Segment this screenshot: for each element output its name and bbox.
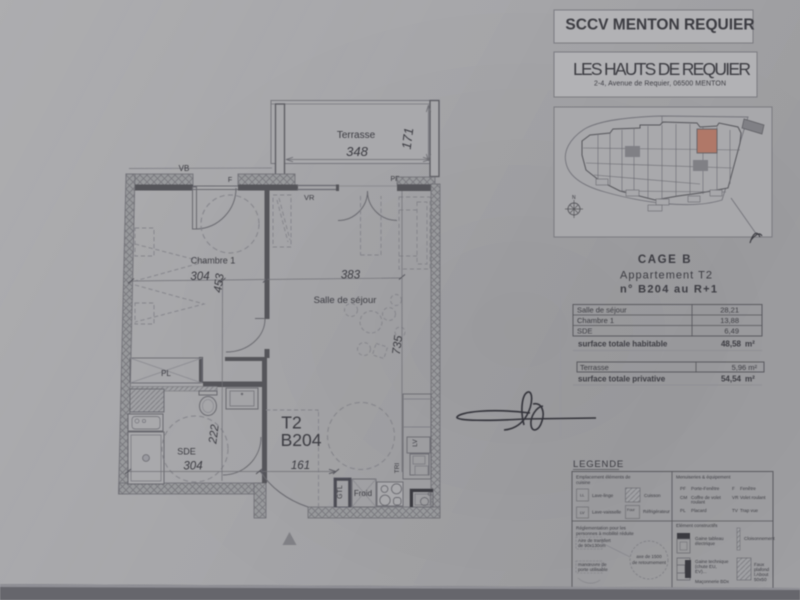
- svg-text:m²: m²: [745, 375, 755, 384]
- svg-text:personnes à mobilité réduite: personnes à mobilité réduite: [576, 531, 634, 536]
- svg-text:13,88: 13,88: [720, 316, 739, 325]
- svg-text:LV: LV: [580, 510, 585, 515]
- svg-text:Réfrigérateur: Réfrigérateur: [643, 509, 670, 514]
- svg-text:Maçonnerie BDx: Maçonnerie BDx: [695, 579, 730, 584]
- svg-text:surface totale habitable: surface totale habitable: [578, 340, 668, 349]
- svg-text:161: 161: [291, 460, 310, 472]
- svg-text:VR: VR: [304, 193, 315, 202]
- svg-text:Terrasse: Terrasse: [337, 130, 376, 141]
- svg-text:PL: PL: [680, 508, 686, 513]
- svg-text:Lave-linge: Lave-linge: [592, 493, 614, 498]
- svg-text:Fenêtre: Fenêtre: [740, 486, 756, 491]
- svg-text:SDE: SDE: [577, 327, 592, 336]
- svg-text:2-4, Avenue de Requier, 06500: 2-4, Avenue de Requier, 06500 MENTON: [594, 81, 726, 88]
- svg-text:Cuisson: Cuisson: [644, 493, 661, 498]
- svg-text:Trap vue: Trap vue: [740, 508, 758, 513]
- svg-text:SCCV MENTON REQUIER: SCCV MENTON REQUIER: [565, 17, 754, 34]
- svg-text:Menuiseries & équipement: Menuiseries & équipement: [676, 475, 731, 480]
- svg-text:735: 735: [391, 334, 405, 355]
- svg-text:Chambre 1: Chambre 1: [577, 316, 614, 325]
- svg-text:PL: PL: [161, 369, 171, 378]
- svg-text:5,96 m²: 5,96 m²: [732, 363, 758, 372]
- svg-text:383: 383: [341, 270, 361, 282]
- svg-text:roulant: roulant: [691, 500, 706, 505]
- svg-text:n° B204 au R+1: n° B204 au R+1: [620, 284, 717, 296]
- svg-text:CAGE B: CAGE B: [638, 254, 692, 266]
- svg-text:Emplacement éléments de: Emplacement éléments de: [576, 475, 631, 480]
- svg-text:50x50: 50x50: [754, 577, 767, 582]
- svg-text:VR: VR: [732, 495, 739, 500]
- svg-text:48,58: 48,58: [721, 340, 742, 349]
- svg-text:F: F: [228, 177, 232, 184]
- svg-text:6,49: 6,49: [724, 327, 739, 336]
- svg-text:électrique: électrique: [695, 541, 715, 546]
- svg-text:surface totale privative: surface totale privative: [578, 375, 666, 384]
- svg-text:Volet roulant: Volet roulant: [740, 495, 766, 500]
- svg-text:Chambre 1: Chambre 1: [191, 256, 236, 266]
- svg-text:Lave-vaisselle: Lave-vaisselle: [592, 510, 622, 515]
- svg-text:GTL: GTL: [337, 485, 344, 499]
- svg-text:LES HAUTS DE REQUIER: LES HAUTS DE REQUIER: [573, 59, 751, 79]
- svg-text:EV)...: EV)...: [695, 569, 707, 574]
- svg-text:VB: VB: [179, 164, 190, 173]
- svg-text:CM: CM: [680, 495, 687, 500]
- svg-text:Four: Four: [627, 508, 636, 512]
- svg-text:SDE: SDE: [177, 447, 196, 457]
- svg-text:axe de 1500: axe de 1500: [636, 554, 662, 559]
- svg-text:28,21: 28,21: [720, 306, 739, 315]
- svg-text:Salle de séjour: Salle de séjour: [577, 306, 627, 315]
- svg-text:m²: m²: [745, 340, 755, 349]
- svg-text:222: 222: [207, 423, 221, 445]
- svg-text:304: 304: [183, 461, 202, 473]
- svg-text:N: N: [572, 195, 576, 201]
- svg-text:F: F: [732, 486, 735, 491]
- svg-text:348: 348: [346, 144, 368, 159]
- svg-text:LEGENDE: LEGENDE: [573, 459, 624, 470]
- svg-text:B204: B204: [281, 430, 322, 450]
- svg-text:porte utilisable: porte utilisable: [578, 567, 608, 572]
- svg-text:PF: PF: [680, 486, 686, 491]
- svg-text:LL: LL: [580, 493, 585, 498]
- svg-text:de retournement: de retournement: [632, 560, 666, 565]
- svg-text:Appartement T2: Appartement T2: [620, 270, 712, 282]
- svg-text:TRI: TRI: [394, 463, 401, 474]
- svg-text:LV: LV: [412, 439, 419, 447]
- svg-text:171: 171: [399, 127, 417, 150]
- svg-text:54,54: 54,54: [721, 375, 742, 384]
- svg-text:Froid: Froid: [354, 489, 372, 498]
- svg-text:TV: TV: [732, 508, 739, 513]
- svg-text:304: 304: [190, 271, 209, 283]
- svg-text:Elément constructifs: Elément constructifs: [676, 523, 718, 528]
- svg-text:Placard: Placard: [691, 508, 707, 513]
- svg-text:Cloisonnement: Cloisonnement: [744, 536, 775, 541]
- svg-text:Terrasse: Terrasse: [580, 363, 609, 372]
- svg-text:453: 453: [212, 272, 226, 293]
- svg-text:de 90x130cm: de 90x130cm: [578, 543, 606, 548]
- svg-text:Porte-Fenêtre: Porte-Fenêtre: [691, 486, 720, 491]
- svg-text:cuisine: cuisine: [576, 480, 591, 485]
- svg-text:Réglementation pour les: Réglementation pour les: [576, 526, 626, 531]
- svg-text:Salle de séjour: Salle de séjour: [314, 295, 377, 306]
